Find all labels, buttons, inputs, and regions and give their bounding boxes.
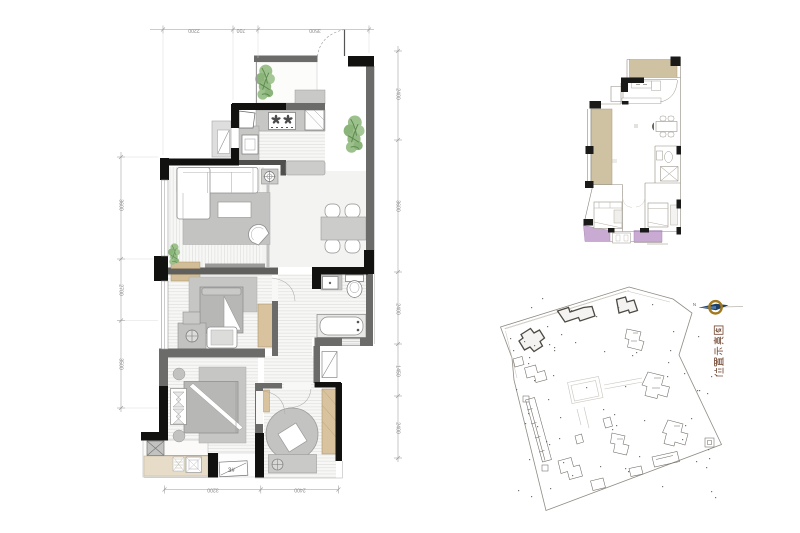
svg-text:2200: 2200	[188, 27, 200, 33]
svg-text:2400: 2400	[395, 422, 401, 434]
svg-text:2700: 2700	[118, 284, 124, 296]
svg-text:700: 700	[237, 27, 246, 33]
svg-text:2400: 2400	[395, 88, 401, 100]
svg-text:3200: 3200	[207, 487, 219, 493]
svg-text:1450: 1450	[395, 365, 401, 377]
svg-text:2400: 2400	[395, 303, 401, 315]
svg-text:N: N	[693, 302, 696, 307]
svg-text:3500: 3500	[118, 358, 124, 370]
svg-text:3600: 3600	[395, 200, 401, 212]
svg-text:3500: 3500	[309, 27, 321, 33]
svg-text:2400: 2400	[294, 487, 306, 493]
svg-text:3#: 3#	[228, 468, 235, 474]
svg-text:3600: 3600	[118, 199, 124, 211]
